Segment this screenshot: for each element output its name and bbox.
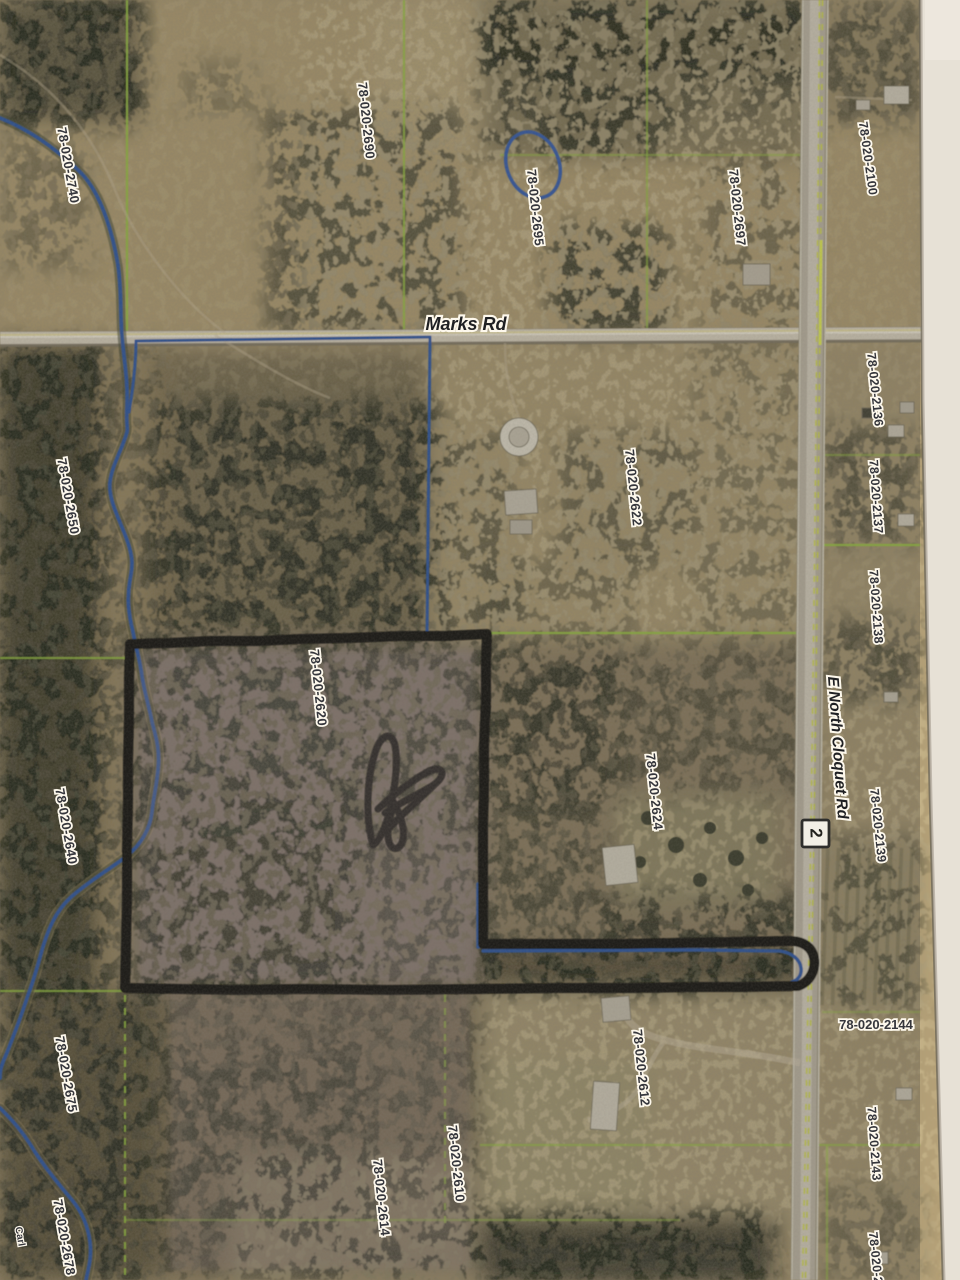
svg-text:78-020-2144: 78-020-2144 (839, 1017, 913, 1032)
svg-text:Marks Rd: Marks Rd (425, 314, 507, 334)
svg-text:2: 2 (806, 828, 825, 838)
